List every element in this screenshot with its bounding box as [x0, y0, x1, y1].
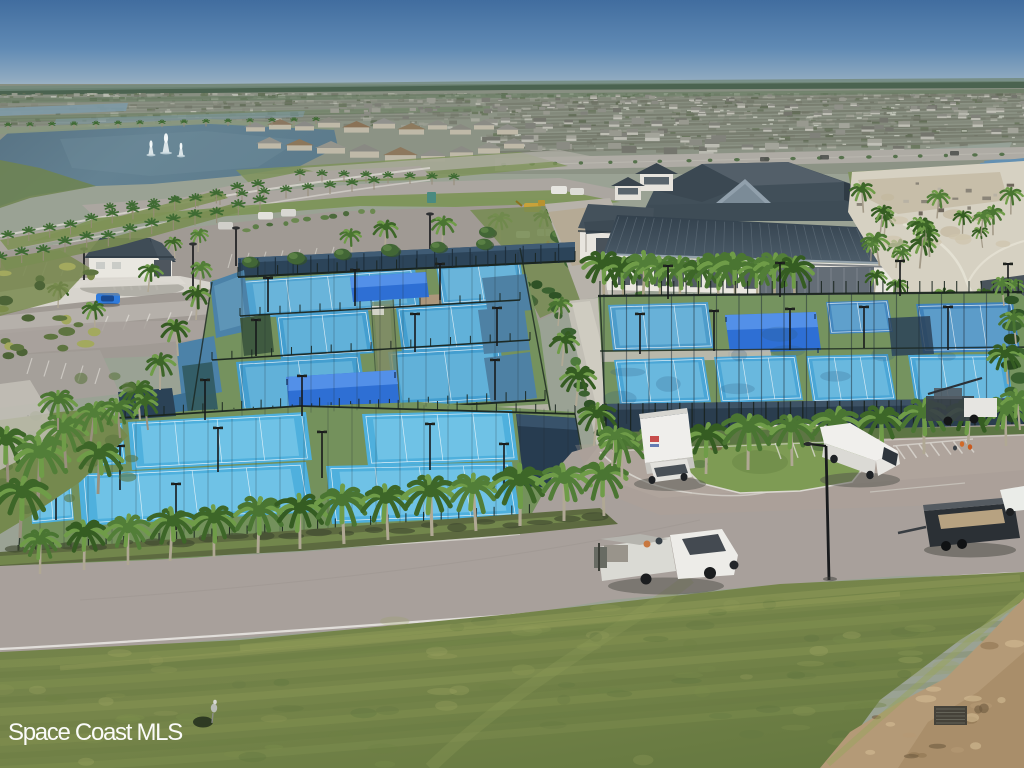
svg-text:Space Coast MLS: Space Coast MLS: [8, 719, 182, 746]
